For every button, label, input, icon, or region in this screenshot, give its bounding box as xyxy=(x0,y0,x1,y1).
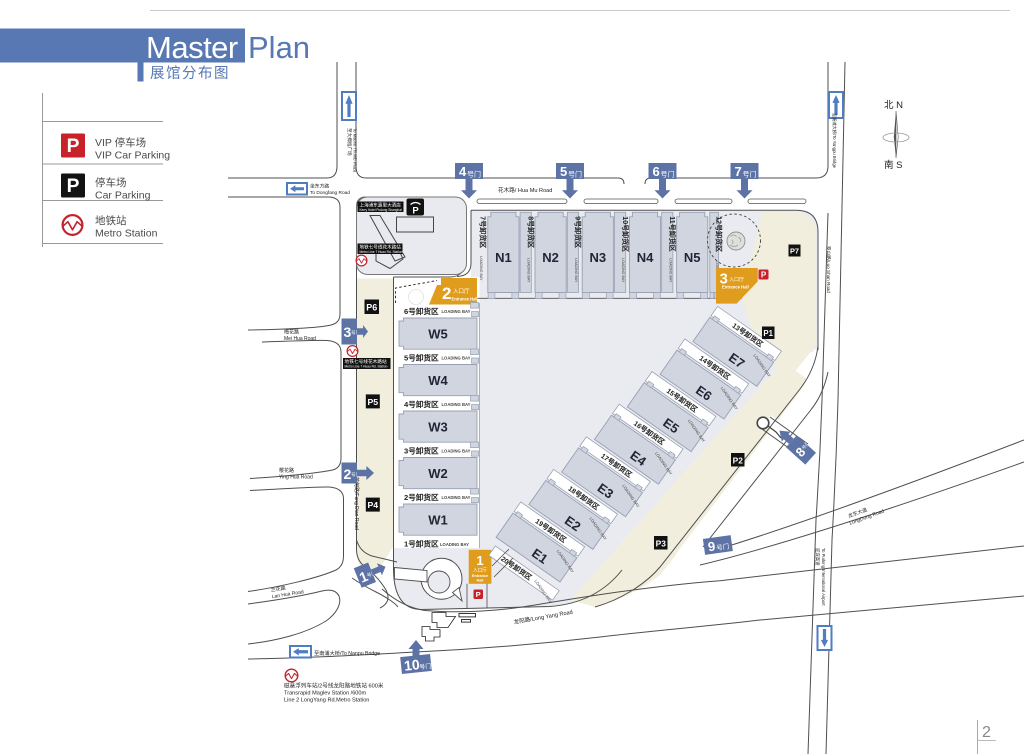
svg-text:LOADING BAY: LOADING BAY xyxy=(442,449,471,454)
svg-text:Kerry Hotel Pudong Shanghai: Kerry Hotel Pudong Shanghai xyxy=(360,208,402,212)
svg-text:P: P xyxy=(67,136,80,157)
svg-text:6: 6 xyxy=(653,164,660,179)
svg-text:P: P xyxy=(761,270,767,279)
svg-text:停车场: 停车场 xyxy=(95,176,127,189)
svg-text:Line 2 LongYang Rd.Metro Stati: Line 2 LongYang Rd.Metro Station xyxy=(284,698,369,704)
svg-text:号门: 号门 xyxy=(467,169,481,178)
svg-text:Metro Line 7 Huau Rd. Station: Metro Line 7 Huau Rd. Station xyxy=(345,365,388,369)
svg-text:展馆分布图: 展馆分布图 xyxy=(150,65,230,82)
svg-text:樱花路: 樱花路 xyxy=(279,467,294,474)
svg-text:5号卸货区: 5号卸货区 xyxy=(404,352,439,362)
svg-text:Mei Hua Road: Mei Hua Road xyxy=(284,336,316,342)
svg-text:LOADING BAY: LOADING BAY xyxy=(442,309,471,314)
svg-text:LOADING BAY: LOADING BAY xyxy=(442,495,471,500)
svg-text:号门: 号门 xyxy=(743,169,757,178)
svg-text:W5: W5 xyxy=(428,327,448,342)
svg-text:至大拇指广场: 至大拇指广场 xyxy=(346,128,353,156)
svg-text:号门: 号门 xyxy=(568,169,582,178)
svg-text:To Maono Thumb Plaza: To Maono Thumb Plaza xyxy=(353,128,358,173)
svg-text:至南浦大桥/To Nanpu Bridge: 至南浦大桥/To Nanpu Bridge xyxy=(314,649,380,657)
svg-text:Entrance Hall: Entrance Hall xyxy=(452,297,478,302)
svg-text:Plan: Plan xyxy=(248,30,310,65)
svg-text:LOADING BAY: LOADING BAY xyxy=(479,256,483,281)
svg-text:梅花路: 梅花路 xyxy=(284,329,299,336)
svg-text:6号卸货区: 6号卸货区 xyxy=(404,306,439,316)
svg-text:N5: N5 xyxy=(684,250,701,265)
svg-text:罗山路/Luo Shan Road: 罗山路/Luo Shan Road xyxy=(825,246,832,293)
svg-text:磁悬浮列车站/2号线龙阳路地铁站 600米: 磁悬浮列车站/2号线龙阳路地铁站 600米 xyxy=(284,682,384,690)
svg-text:12号卸货区: 12号卸货区 xyxy=(714,216,723,252)
svg-text:LOADING BAY: LOADING BAY xyxy=(621,258,625,283)
svg-text:Entrance: Entrance xyxy=(472,574,488,578)
svg-text:1号卸货区: 1号卸货区 xyxy=(404,539,439,549)
svg-text:北 N: 北 N xyxy=(884,100,903,111)
svg-text:To Pudong International Airpor: To Pudong International Airport xyxy=(821,548,826,606)
svg-text:P5: P5 xyxy=(367,397,378,407)
svg-text:1: 1 xyxy=(476,553,483,568)
svg-text:至杨浦大桥/To Yangpu Bridge: 至杨浦大桥/To Yangpu Bridge xyxy=(831,113,838,169)
svg-text:3号卸货区: 3号卸货区 xyxy=(404,445,439,455)
svg-text:地铁站: 地铁站 xyxy=(95,214,127,227)
svg-text:9号卸货区: 9号卸货区 xyxy=(574,216,583,248)
svg-text:LOADING BAY: LOADING BAY xyxy=(574,258,578,283)
svg-text:N3: N3 xyxy=(589,250,606,265)
svg-text:2: 2 xyxy=(442,284,451,303)
svg-text:LOADING BAY: LOADING BAY xyxy=(440,542,469,547)
svg-text:VIP 停车场: VIP 停车场 xyxy=(95,136,146,149)
svg-text:P: P xyxy=(476,590,481,599)
svg-text:LOADING BAY: LOADING BAY xyxy=(442,356,471,361)
svg-text:N2: N2 xyxy=(542,250,559,265)
svg-text:7号卸货区: 7号卸货区 xyxy=(479,216,488,248)
svg-text:Entrance Hall: Entrance Hall xyxy=(722,285,749,290)
svg-text:VIP Car Parking: VIP Car Parking xyxy=(95,150,170,162)
svg-text:Ying Hua Road: Ying Hua Road xyxy=(279,475,313,481)
svg-text:4号卸货区: 4号卸货区 xyxy=(404,399,439,409)
svg-text:2: 2 xyxy=(982,724,991,741)
svg-text:P7: P7 xyxy=(790,247,799,256)
svg-text:11号卸货区: 11号卸货区 xyxy=(668,216,677,251)
svg-text:4: 4 xyxy=(459,164,467,179)
svg-text:P: P xyxy=(412,206,419,217)
svg-text:N4: N4 xyxy=(637,250,654,265)
svg-text:号门: 号门 xyxy=(661,169,675,178)
svg-text:芳甸路/Fang Dian Road: 芳甸路/Fang Dian Road xyxy=(353,477,360,530)
svg-text:10号卸货区: 10号卸货区 xyxy=(621,216,630,252)
svg-text:W1: W1 xyxy=(428,513,448,528)
svg-text:Master: Master xyxy=(146,30,238,65)
svg-text:LOADING BAY: LOADING BAY xyxy=(668,258,672,283)
svg-text:N1: N1 xyxy=(495,250,512,265)
svg-text:Transrapid Maglev Station /60: Transrapid Maglev Station /600m xyxy=(284,691,367,697)
svg-text:2号卸货区: 2号卸货区 xyxy=(404,492,439,502)
svg-text:To Dongfang Road: To Dongfang Road xyxy=(310,190,350,196)
svg-text:南 S: 南 S xyxy=(884,159,902,171)
svg-text:Car Parking: Car Parking xyxy=(95,190,151,202)
svg-text:P6: P6 xyxy=(366,303,377,313)
svg-text:W3: W3 xyxy=(428,420,448,435)
svg-text:花木路/ Hua Mu Road: 花木路/ Hua Mu Road xyxy=(498,186,552,194)
svg-text:7: 7 xyxy=(735,164,742,179)
svg-text:Metro Line 7 Huau Rd. Station: Metro Line 7 Huau Rd. Station xyxy=(360,250,403,254)
svg-text:W2: W2 xyxy=(428,466,448,481)
svg-text:入口厅: 入口厅 xyxy=(729,277,744,283)
svg-text:5: 5 xyxy=(560,164,567,179)
svg-text:P: P xyxy=(67,176,80,197)
svg-text:坐东方路: 坐东方路 xyxy=(310,183,329,190)
svg-text:8号卸货区: 8号卸货区 xyxy=(526,216,535,248)
svg-text:迎宾高速: 迎宾高速 xyxy=(814,548,821,566)
svg-text:P1: P1 xyxy=(763,329,773,338)
svg-text:LOADING BAY: LOADING BAY xyxy=(442,402,471,407)
svg-text:P2: P2 xyxy=(733,455,744,465)
svg-text:Metro Station: Metro Station xyxy=(95,228,158,240)
svg-text:10: 10 xyxy=(403,656,420,674)
svg-text:W4: W4 xyxy=(428,373,448,388)
svg-text:入口厅: 入口厅 xyxy=(453,288,470,295)
svg-text:P4: P4 xyxy=(367,500,378,510)
svg-text:P3: P3 xyxy=(656,538,667,548)
svg-text:Hall: Hall xyxy=(477,579,484,583)
svg-text:LOADING BAY: LOADING BAY xyxy=(527,258,531,283)
